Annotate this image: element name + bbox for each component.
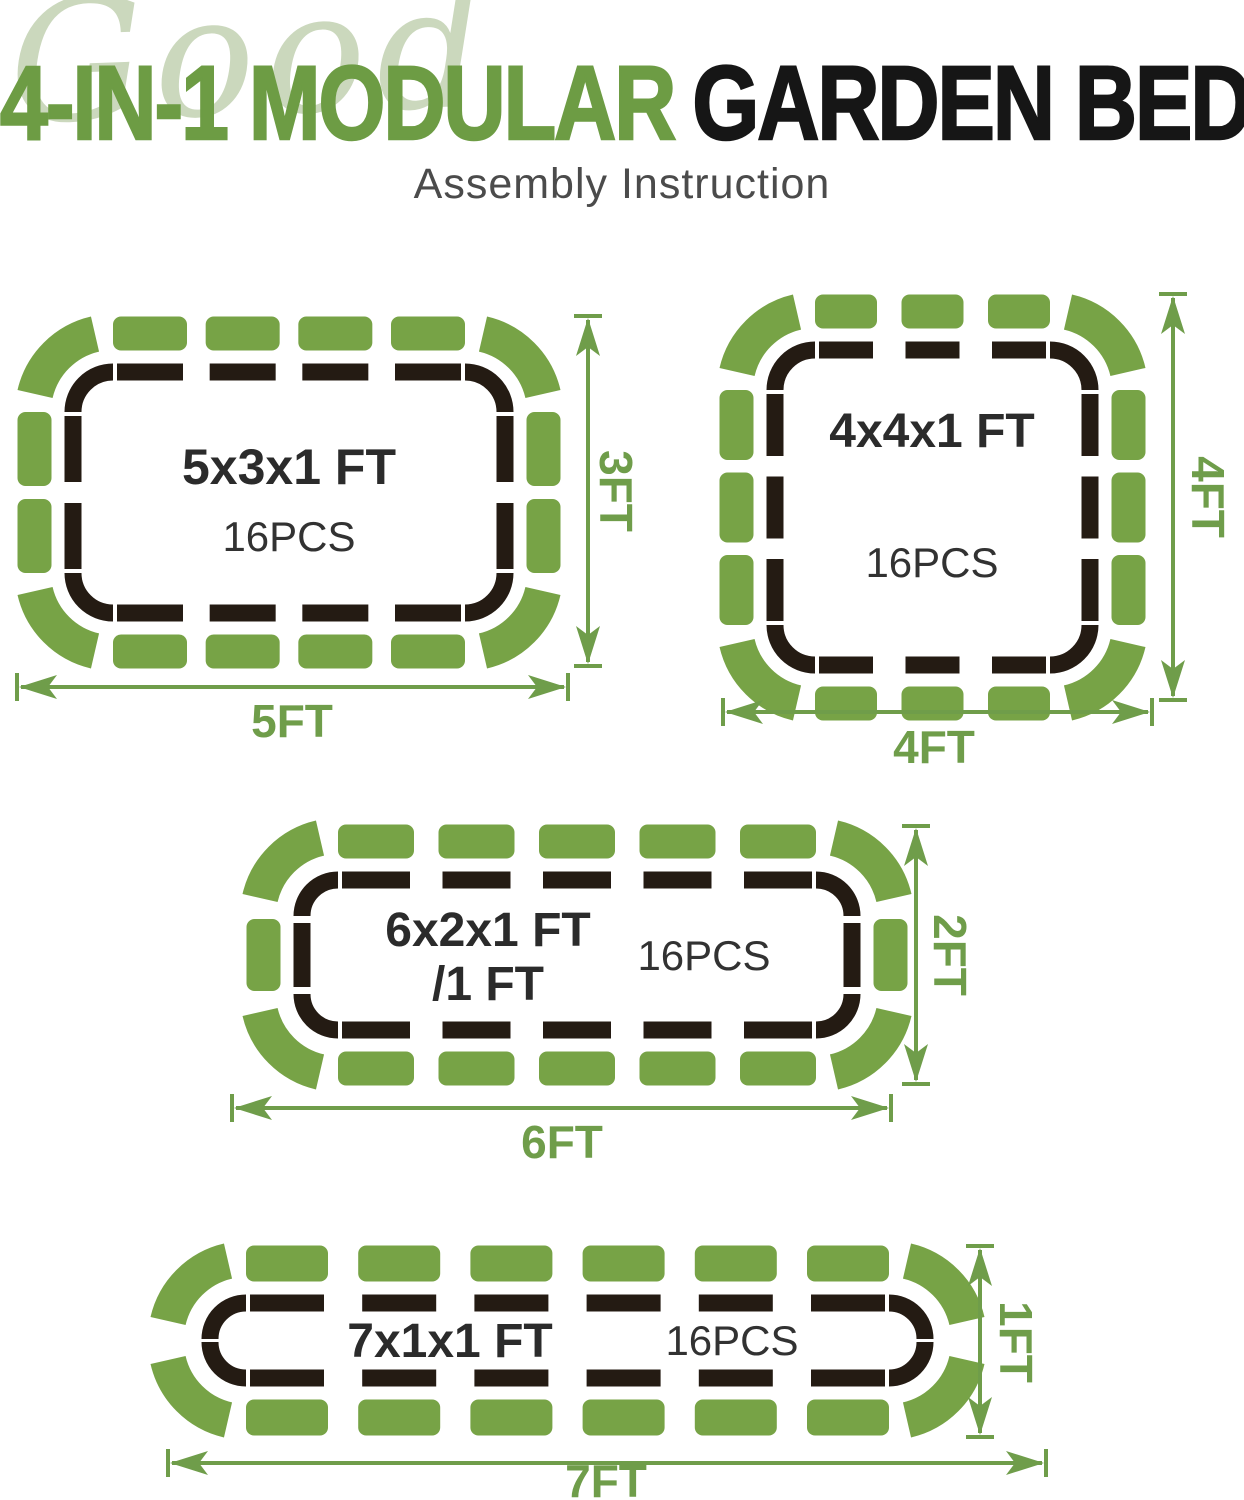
dimension-arrow-horizontal: 6FT <box>232 1094 891 1168</box>
panel-piece <box>807 1246 889 1282</box>
dimension-arrow-vertical: 3FT <box>574 316 642 666</box>
size-label: 4x4x1 FT <box>829 405 1034 458</box>
panel-piece <box>391 317 465 351</box>
outline-dash <box>767 477 784 539</box>
height-label: 3FT <box>590 450 642 532</box>
panel-piece <box>815 295 877 329</box>
panel-piece <box>988 295 1050 329</box>
outline-dash <box>767 394 784 456</box>
panel-piece <box>640 825 716 859</box>
width-label: 5FT <box>251 695 333 747</box>
panel-piece <box>1112 473 1146 543</box>
outline-dash <box>294 923 311 987</box>
pieces-count-label: 16PCS <box>865 539 998 586</box>
outline-corner-arc <box>465 372 505 412</box>
diagram-bed-5x3: 3FT5FT5x3x1 FT16PCS <box>17 316 642 747</box>
outline-dash <box>644 1022 712 1039</box>
pieces-count-label: 16PCS <box>637 932 770 979</box>
outline-dash <box>342 872 410 889</box>
panel-piece <box>439 1052 515 1086</box>
panel-pieces <box>168 1246 967 1436</box>
panel-piece <box>246 1400 328 1436</box>
width-label: 7FT <box>565 1455 647 1500</box>
outline-dash <box>906 342 960 359</box>
outline-corner-arc <box>73 372 113 412</box>
panel-piece <box>439 825 515 859</box>
outline-dash <box>250 1295 324 1312</box>
panel-piece <box>206 317 280 351</box>
panel-piece <box>113 317 187 351</box>
panel-piece <box>18 412 52 486</box>
outline-dash <box>767 559 784 621</box>
outline-corner-arc <box>889 1303 925 1339</box>
outline-dash <box>906 657 960 674</box>
height-label: 1FT <box>990 1301 1042 1383</box>
outline-dash <box>811 1295 885 1312</box>
outline-dash <box>543 872 611 889</box>
panel-piece <box>815 687 877 721</box>
panel-piece <box>1112 555 1146 625</box>
height-label: 2FT <box>924 914 976 996</box>
panel-piece <box>583 1246 665 1282</box>
outline-dash <box>497 503 514 569</box>
outline-dash <box>362 1370 436 1387</box>
outline-dash <box>443 1022 511 1039</box>
outline-dash <box>342 1022 410 1039</box>
bed-outline <box>767 342 1099 674</box>
diagram-bed-6x2: 2FT6FT6x2x1 FT/1 FT16PCS <box>232 825 976 1169</box>
panel-piece <box>740 825 816 859</box>
dimension-arrow-vertical: 4FT <box>1159 294 1234 700</box>
outline-dash <box>992 342 1046 359</box>
outline-dash <box>65 416 82 482</box>
panel-piece <box>206 635 280 669</box>
diagram-bed-7x1: 1FT7FT7x1x1 FT16PCS <box>168 1246 1046 1500</box>
outline-dash <box>65 503 82 569</box>
panel-piece <box>338 825 414 859</box>
panel-piece <box>720 473 754 543</box>
dimension-arrow-horizontal: 5FT <box>17 673 568 747</box>
width-label: 6FT <box>521 1116 603 1168</box>
outline-dash <box>474 1370 548 1387</box>
panel-piece <box>640 1052 716 1086</box>
panel-piece <box>338 1052 414 1086</box>
outline-dash <box>474 1295 548 1312</box>
outline-dash <box>117 605 183 622</box>
page-title-black: GARDEN BED <box>692 45 1244 162</box>
panel-piece <box>470 1400 552 1436</box>
size-label: 6x2x1 FT <box>385 904 590 957</box>
size-label-line2: /1 FT <box>432 958 544 1011</box>
panel-piece <box>740 1052 816 1086</box>
dimension-arrow-vertical: 1FT <box>966 1246 1042 1437</box>
outline-dash <box>543 1022 611 1039</box>
outline-dash <box>819 342 873 359</box>
panel-piece <box>246 1246 328 1282</box>
outline-dash <box>395 364 461 381</box>
outline-corner-arc <box>816 994 852 1030</box>
outline-dash <box>302 605 368 622</box>
panel-piece <box>298 317 372 351</box>
panel-piece <box>583 1400 665 1436</box>
outline-dash <box>587 1295 661 1312</box>
outline-corner-arc <box>775 350 815 390</box>
outline-dash <box>744 1022 812 1039</box>
outline-corner-arc <box>889 1342 925 1378</box>
outline-corner-arc <box>302 994 338 1030</box>
outline-corner-arc <box>1050 625 1090 665</box>
outline-dash <box>587 1370 661 1387</box>
outline-dash <box>497 416 514 482</box>
panel-piece <box>247 919 281 991</box>
outline-dash <box>811 1370 885 1387</box>
panel-piece <box>874 919 908 991</box>
panel-piece <box>470 1246 552 1282</box>
outline-dash <box>362 1295 436 1312</box>
page-title-green: 4-IN-1 MODULAR <box>0 45 674 162</box>
panel-piece <box>695 1400 777 1436</box>
diagram-bed-4x4: 4FT4FT4x4x1 FT16PCS <box>720 294 1235 773</box>
panel-piece <box>1112 390 1146 460</box>
panel-piece <box>807 1400 889 1436</box>
width-label: 4FT <box>893 721 975 773</box>
pieces-count-label: 16PCS <box>665 1317 798 1364</box>
bed-outline <box>210 1295 925 1387</box>
outline-dash <box>1082 394 1099 456</box>
dimension-annotations: 4FT4FT <box>723 294 1234 773</box>
panel-piece <box>720 555 754 625</box>
outline-dash <box>117 364 183 381</box>
outline-dash <box>210 364 276 381</box>
panel-piece <box>298 635 372 669</box>
outline-corner-arc <box>73 573 113 613</box>
panel-piece <box>539 1052 615 1086</box>
outline-dash <box>1082 477 1099 539</box>
dimension-arrow-vertical: 2FT <box>902 826 976 1084</box>
outline-dash <box>443 872 511 889</box>
outline-dash <box>699 1370 773 1387</box>
panel-piece <box>527 412 561 486</box>
assembly-instruction-sheet: Good 4-IN-1 MODULARGARDEN BED Assembly I… <box>0 0 1244 1500</box>
size-label: 7x1x1 FT <box>347 1315 552 1368</box>
panel-piece <box>18 499 52 573</box>
outline-dash <box>250 1370 324 1387</box>
panel-piece <box>695 1246 777 1282</box>
outline-corner-arc <box>775 625 815 665</box>
outline-dash <box>844 923 861 987</box>
outline-dash <box>210 605 276 622</box>
height-label: 4FT <box>1182 456 1234 538</box>
outline-corner-arc <box>210 1303 246 1339</box>
panel-piece <box>358 1246 440 1282</box>
panel-piece <box>358 1400 440 1436</box>
outline-dash <box>819 657 873 674</box>
outline-dash <box>644 872 712 889</box>
page-subtitle: Assembly Instruction <box>0 160 1244 209</box>
panel-piece <box>988 687 1050 721</box>
size-label: 5x3x1 FT <box>182 439 396 495</box>
page-title: 4-IN-1 MODULARGARDEN BED <box>0 44 1244 165</box>
panel-piece <box>539 825 615 859</box>
outline-dash <box>395 605 461 622</box>
outline-corner-arc <box>1050 350 1090 390</box>
outline-corner-arc <box>302 880 338 916</box>
panel-piece <box>391 635 465 669</box>
panel-piece <box>113 635 187 669</box>
outline-dash <box>744 872 812 889</box>
panel-piece <box>902 687 964 721</box>
outline-dash <box>699 1295 773 1312</box>
outline-dash <box>302 364 368 381</box>
outline-corner-arc <box>816 880 852 916</box>
dimension-arrow-horizontal: 7FT <box>168 1449 1046 1500</box>
panel-piece <box>527 499 561 573</box>
outline-dash <box>1082 559 1099 621</box>
outline-corner-arc <box>210 1342 246 1378</box>
panel-piece <box>902 295 964 329</box>
outline-corner-arc <box>465 573 505 613</box>
assembly-diagrams: 3FT5FT5x3x1 FT16PCS4FT4FT4x4x1 FT16PCS2F… <box>0 0 1244 1500</box>
panel-piece <box>720 390 754 460</box>
outline-dash <box>992 657 1046 674</box>
pieces-count-label: 16PCS <box>222 513 355 560</box>
